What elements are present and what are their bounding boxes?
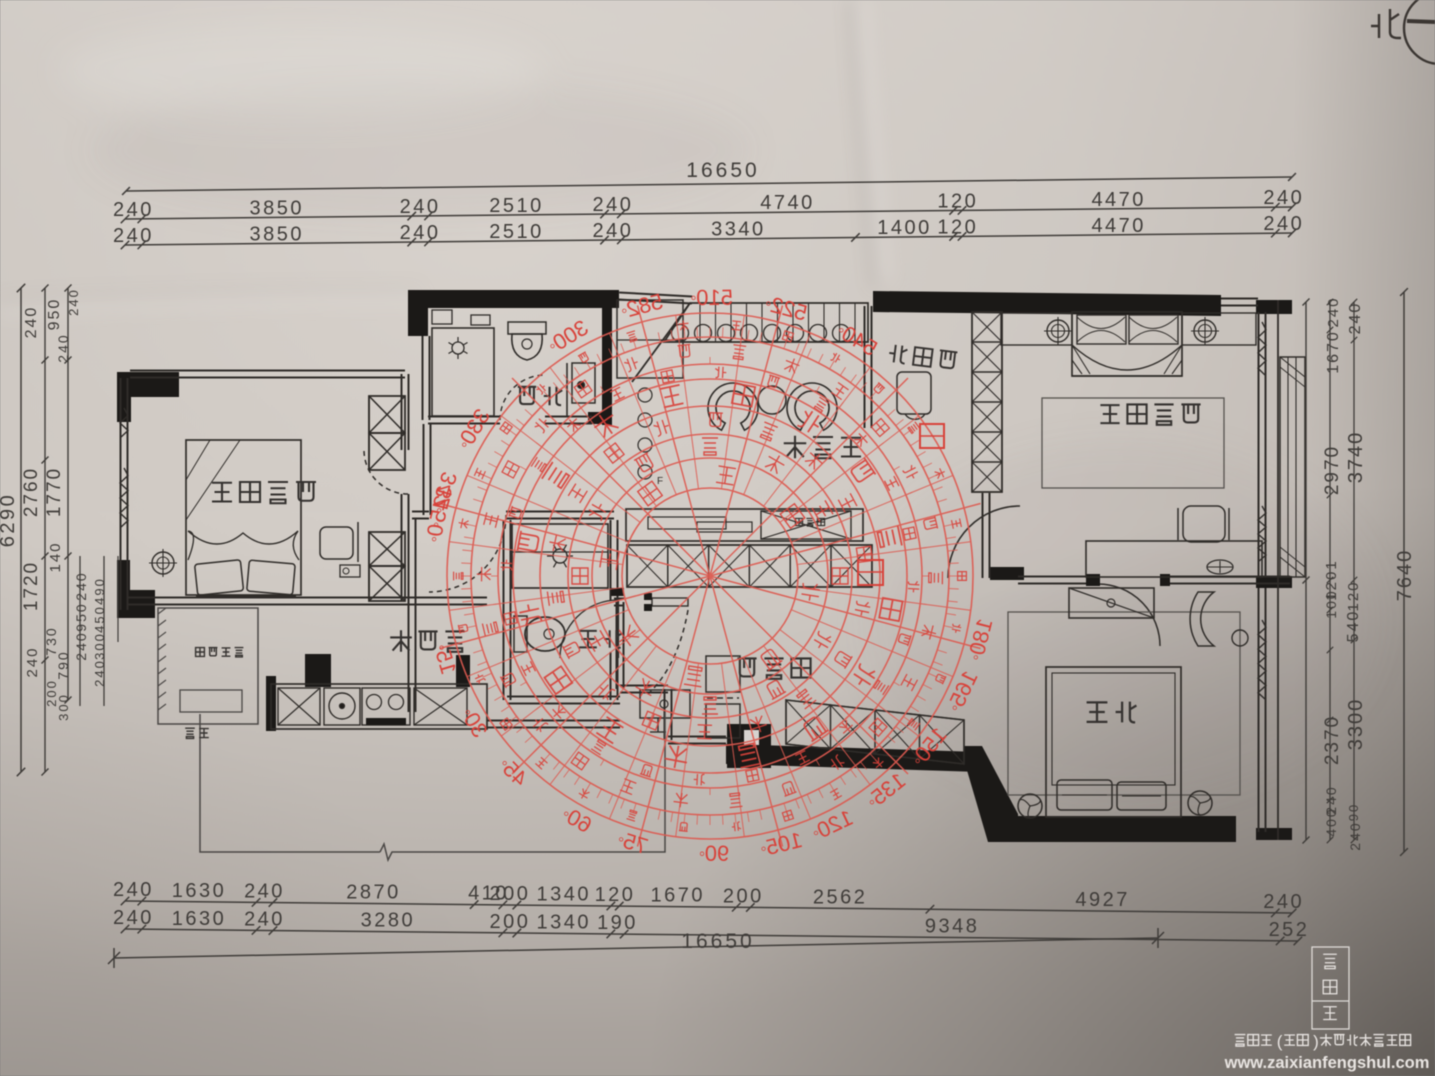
svg-text:950: 950	[46, 298, 63, 331]
svg-text:F: F	[657, 476, 663, 487]
svg-text:240: 240	[23, 306, 40, 339]
svg-text:240: 240	[113, 199, 154, 221]
svg-text:120: 120	[1345, 580, 1362, 611]
svg-text:2562: 2562	[813, 886, 868, 908]
svg-text:240: 240	[92, 659, 107, 687]
svg-text:240: 240	[400, 222, 441, 244]
svg-text:3280: 3280	[361, 910, 416, 932]
svg-text:): )	[1313, 1032, 1319, 1051]
svg-text:790: 790	[55, 650, 71, 679]
svg-text:1400: 1400	[877, 217, 932, 239]
svg-text:3850: 3850	[250, 223, 305, 245]
svg-text:240: 240	[1325, 296, 1342, 327]
svg-text:140: 140	[47, 541, 64, 572]
svg-text:3340: 3340	[711, 219, 766, 241]
svg-text:950: 950	[73, 602, 89, 631]
svg-text:200: 200	[723, 885, 764, 907]
svg-text:16650: 16650	[681, 930, 754, 953]
svg-text:4740: 4740	[760, 192, 815, 214]
svg-text:6290: 6290	[0, 493, 19, 548]
svg-text:16650: 16650	[686, 159, 759, 182]
svg-text:2870: 2870	[346, 882, 401, 904]
svg-text:1720: 1720	[21, 561, 42, 611]
svg-text:120: 120	[937, 216, 978, 238]
svg-text:4470: 4470	[1091, 215, 1146, 237]
svg-text:240: 240	[113, 225, 154, 247]
svg-text:240: 240	[113, 879, 154, 901]
svg-text:190: 190	[597, 912, 638, 934]
svg-text:1770: 1770	[44, 467, 65, 517]
svg-text:240: 240	[244, 880, 285, 902]
svg-text:200: 200	[489, 883, 530, 905]
svg-text:240: 240	[73, 631, 89, 660]
svg-text:240: 240	[1347, 302, 1364, 335]
svg-text:1340: 1340	[537, 884, 592, 906]
svg-text:100: 100	[1323, 589, 1339, 618]
svg-text:300: 300	[92, 632, 107, 660]
svg-text:3300: 3300	[1345, 698, 1367, 751]
svg-text:240: 240	[1263, 891, 1304, 913]
svg-text:490: 490	[92, 577, 107, 605]
svg-text:9348: 9348	[925, 916, 980, 938]
svg-text:252: 252	[1269, 919, 1310, 941]
svg-text:7640: 7640	[1394, 549, 1416, 602]
svg-text:120: 120	[595, 884, 636, 906]
svg-text:400: 400	[1323, 807, 1339, 836]
svg-text:240: 240	[66, 288, 81, 316]
svg-text:www.zaixianfengshul.com: www.zaixianfengshul.com	[1224, 1054, 1430, 1072]
svg-text:240: 240	[592, 220, 633, 242]
svg-text:240: 240	[592, 194, 633, 216]
svg-text:240: 240	[113, 907, 154, 929]
svg-text:240: 240	[24, 646, 41, 677]
svg-text:1340: 1340	[537, 912, 592, 934]
svg-text:450: 450	[92, 605, 107, 633]
svg-text:540: 540	[1345, 610, 1362, 643]
svg-text:2510: 2510	[489, 195, 544, 217]
svg-text:3740: 3740	[1345, 431, 1367, 484]
svg-text:240: 240	[244, 908, 285, 930]
svg-text:2970: 2970	[1322, 445, 1343, 495]
svg-text:1630: 1630	[172, 908, 227, 930]
svg-text:1670: 1670	[1325, 330, 1342, 374]
svg-text:200: 200	[489, 911, 530, 933]
svg-text:120: 120	[937, 190, 978, 212]
svg-text:2510: 2510	[489, 221, 544, 243]
svg-text:4470: 4470	[1091, 189, 1146, 211]
svg-text:4927: 4927	[1075, 889, 1130, 911]
svg-text:240: 240	[400, 196, 441, 218]
svg-text:240: 240	[55, 333, 71, 362]
svg-text:3850: 3850	[250, 197, 305, 219]
svg-text:2370: 2370	[1322, 715, 1343, 765]
svg-text:(: (	[1277, 1032, 1283, 1051]
svg-text:240: 240	[73, 571, 89, 600]
svg-text:1630: 1630	[172, 880, 227, 902]
svg-text:1670: 1670	[651, 885, 706, 907]
svg-text:240: 240	[1263, 213, 1304, 235]
svg-text:240: 240	[1347, 821, 1363, 850]
svg-text:300: 300	[56, 693, 71, 721]
svg-text:2760: 2760	[21, 467, 42, 517]
svg-text:240: 240	[1263, 187, 1304, 209]
svg-text:90: 90	[1346, 803, 1361, 821]
